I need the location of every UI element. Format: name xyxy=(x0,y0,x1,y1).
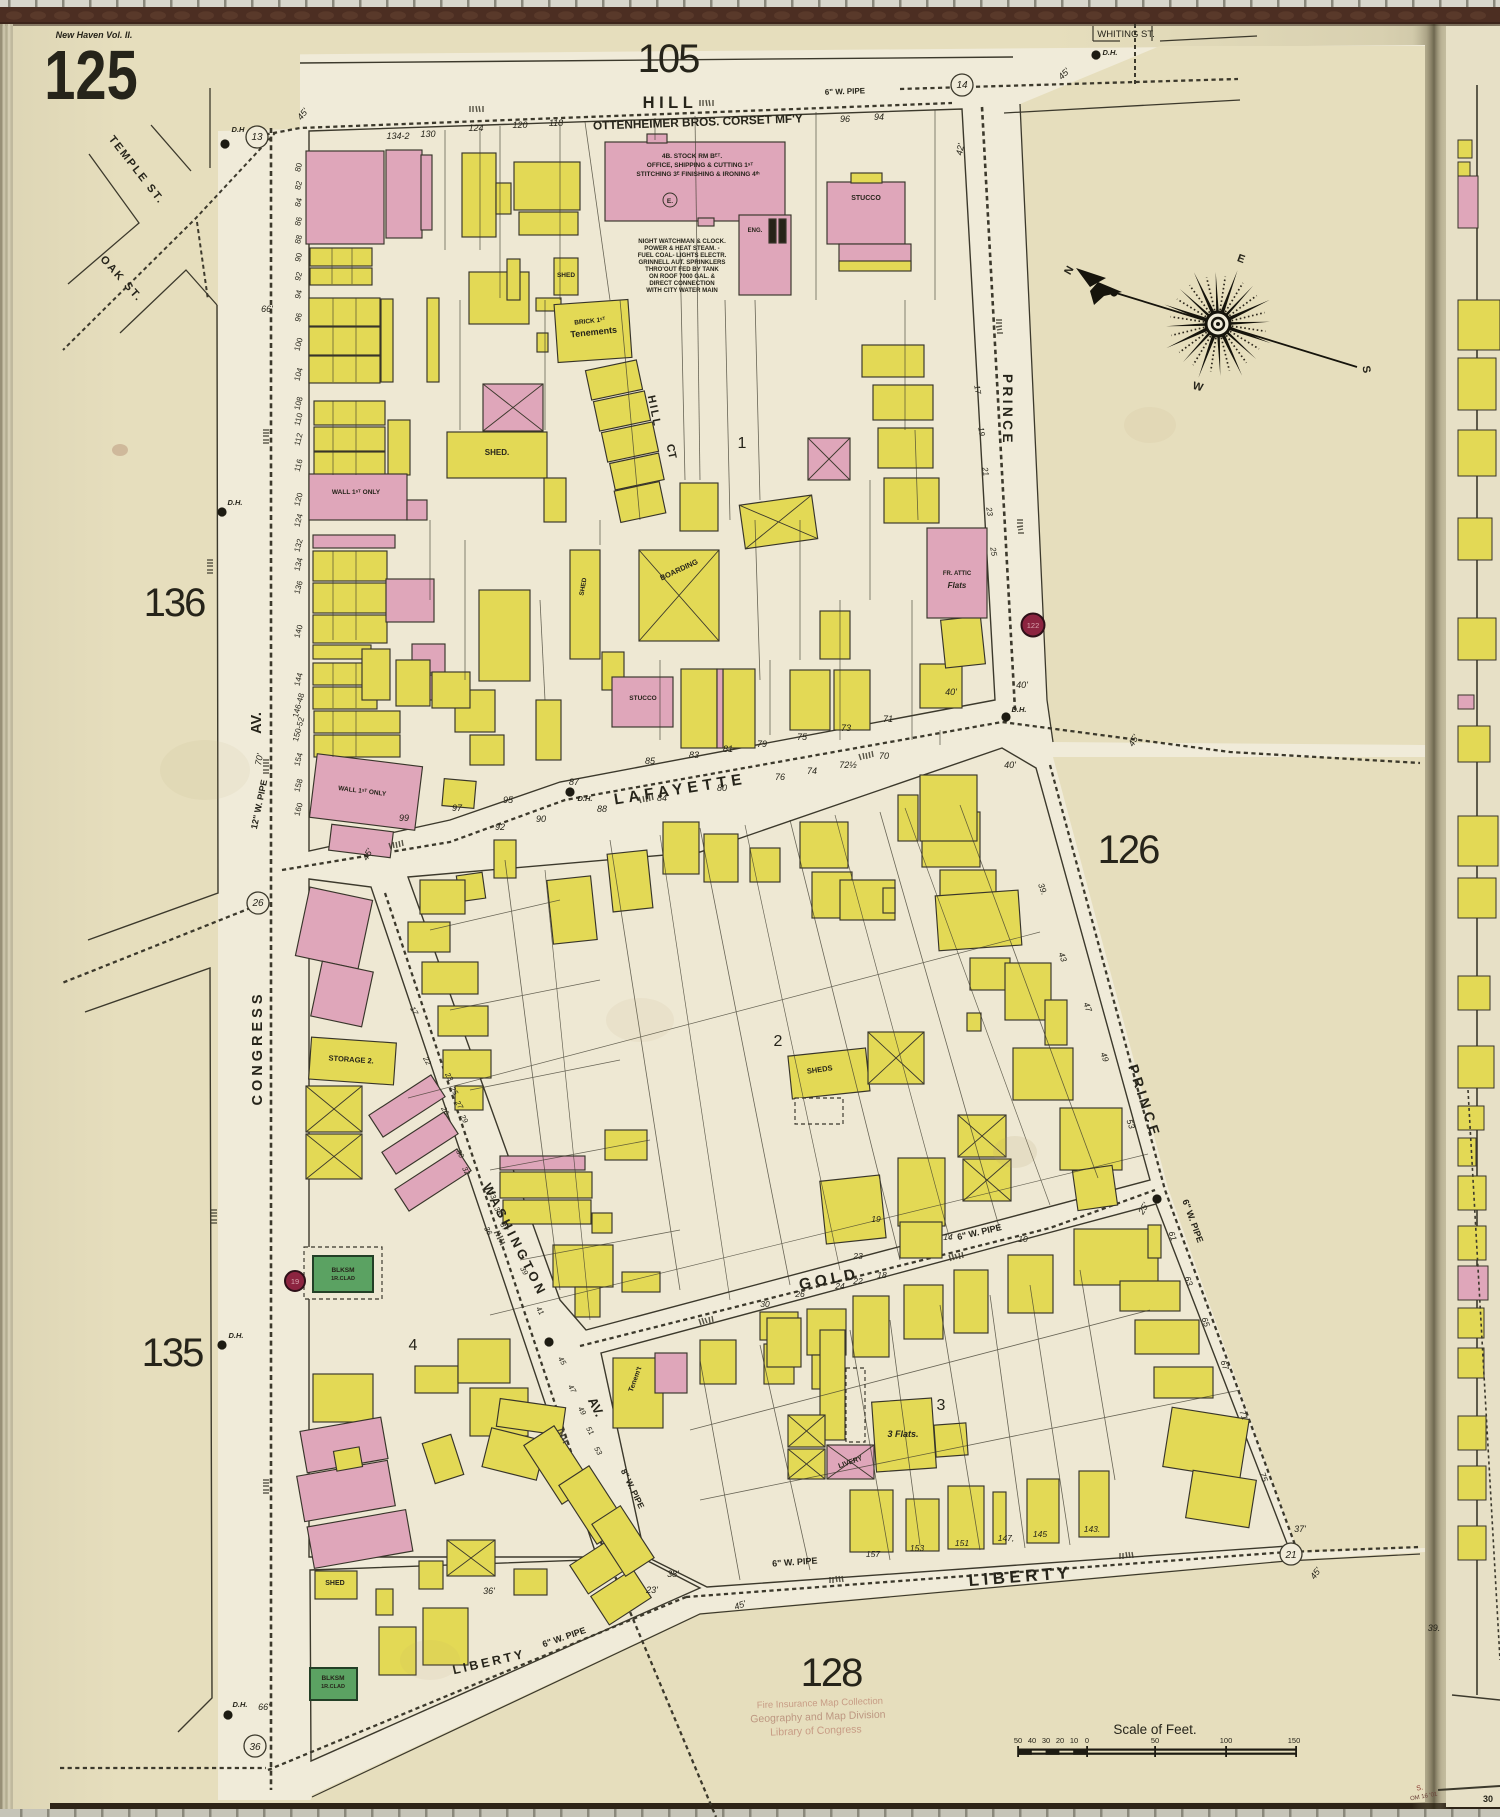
svg-text:HILL: HILL xyxy=(643,94,698,112)
svg-text:73: 73 xyxy=(841,723,851,733)
svg-text:4: 4 xyxy=(409,1337,418,1354)
svg-text:DIRECT CONNECTION: DIRECT CONNECTION xyxy=(649,280,714,287)
svg-text:94: 94 xyxy=(874,112,884,122)
svg-text:83: 83 xyxy=(689,750,699,760)
svg-text:WITH CITY WATER MAIN: WITH CITY WATER MAIN xyxy=(646,287,718,294)
svg-text:72½: 72½ xyxy=(839,760,857,770)
svg-text:100: 100 xyxy=(1220,1736,1233,1745)
svg-text:66': 66' xyxy=(261,304,273,314)
svg-text:GRINNELL AUT. SPRINKLERS: GRINNELL AUT. SPRINKLERS xyxy=(638,259,725,266)
svg-text:D.H.: D.H. xyxy=(228,498,243,507)
svg-text:21: 21 xyxy=(1284,1550,1296,1561)
svg-text:SHED: SHED xyxy=(325,1580,344,1587)
svg-text:88: 88 xyxy=(597,804,607,814)
svg-text:24: 24 xyxy=(834,1281,845,1291)
svg-text:1R.CLAD: 1R.CLAD xyxy=(321,1684,345,1690)
svg-text:36': 36' xyxy=(483,1586,495,1596)
svg-text:10: 10 xyxy=(1070,1736,1078,1745)
svg-text:18: 18 xyxy=(877,1270,887,1280)
svg-text:AV.: AV. xyxy=(249,712,265,734)
svg-text:S.: S. xyxy=(1416,1784,1424,1792)
svg-text:21: 21 xyxy=(980,465,991,476)
svg-text:BLKSM: BLKSM xyxy=(321,1675,344,1682)
svg-text:26: 26 xyxy=(794,1289,805,1299)
svg-text:40': 40' xyxy=(1004,760,1016,770)
svg-text:128: 128 xyxy=(801,1651,862,1695)
svg-text:STUCCO: STUCCO xyxy=(629,695,656,702)
svg-text:150: 150 xyxy=(1288,1736,1301,1745)
svg-text:D.H: D.H xyxy=(232,125,246,134)
svg-text:6" W. PIPE: 6" W. PIPE xyxy=(825,86,866,96)
svg-text:74: 74 xyxy=(807,766,817,776)
svg-text:2: 2 xyxy=(774,1033,783,1050)
svg-text:30: 30 xyxy=(760,1299,770,1309)
svg-text:1R.CLAD: 1R.CLAD xyxy=(331,1276,355,1282)
svg-text:90: 90 xyxy=(536,814,546,824)
svg-text:19: 19 xyxy=(871,1214,881,1224)
svg-text:D.H.: D.H. xyxy=(1012,705,1027,714)
svg-text:14: 14 xyxy=(943,1232,953,1242)
svg-text:STUCCO: STUCCO xyxy=(851,195,881,202)
svg-text:39.: 39. xyxy=(1428,1623,1441,1633)
svg-text:151: 151 xyxy=(955,1538,969,1548)
svg-text:ENG.: ENG. xyxy=(748,228,763,234)
svg-text:26: 26 xyxy=(251,898,264,909)
svg-text:97: 97 xyxy=(452,803,463,813)
svg-text:70': 70' xyxy=(253,753,265,767)
svg-text:157: 157 xyxy=(866,1549,880,1559)
svg-text:D.H.: D.H. xyxy=(229,1331,244,1340)
svg-text:23: 23 xyxy=(852,1251,863,1261)
svg-text:38': 38' xyxy=(667,1569,679,1579)
svg-text:14: 14 xyxy=(956,80,968,91)
svg-text:WALL 1ˢᵀ ONLY: WALL 1ˢᵀ ONLY xyxy=(332,489,381,496)
svg-text:125: 125 xyxy=(44,37,137,114)
svg-text:96: 96 xyxy=(840,114,850,124)
svg-text:126: 126 xyxy=(1098,828,1159,872)
svg-text:POWER & HEAT STEAM. -: POWER & HEAT STEAM. - xyxy=(644,245,719,252)
svg-text:84: 84 xyxy=(657,793,667,803)
svg-text:40': 40' xyxy=(945,687,957,697)
svg-text:BLKSM: BLKSM xyxy=(331,1267,354,1274)
svg-text:13: 13 xyxy=(251,132,263,143)
svg-text:118: 118 xyxy=(549,118,563,128)
svg-text:WHITING ST.: WHITING ST. xyxy=(1097,29,1155,40)
svg-text:22: 22 xyxy=(852,1276,863,1286)
svg-text:20: 20 xyxy=(1056,1736,1064,1745)
svg-text:19: 19 xyxy=(291,1277,299,1286)
svg-text:99: 99 xyxy=(399,813,409,823)
svg-text:80: 80 xyxy=(717,783,727,793)
svg-text:Scale of Feet.: Scale of Feet. xyxy=(1113,1722,1196,1737)
svg-text:134-2: 134-2 xyxy=(386,131,409,141)
svg-text:3: 3 xyxy=(937,1397,946,1414)
svg-text:ON ROOF 7000 GAL. &: ON ROOF 7000 GAL. & xyxy=(649,273,716,280)
svg-text:CONGRESS: CONGRESS xyxy=(250,991,266,1106)
svg-text:120: 120 xyxy=(512,120,527,130)
svg-text:SHED: SHED xyxy=(557,272,575,279)
svg-text:50: 50 xyxy=(1014,1736,1022,1745)
svg-text:0: 0 xyxy=(1085,1736,1089,1745)
svg-text:E.: E. xyxy=(667,198,673,205)
svg-text:D.H.: D.H. xyxy=(578,794,593,803)
svg-text:3 Flats.: 3 Flats. xyxy=(887,1429,918,1439)
svg-text:30: 30 xyxy=(1042,1736,1050,1745)
svg-text:81: 81 xyxy=(723,744,733,754)
svg-text:FR. ATTIC: FR. ATTIC xyxy=(943,571,972,577)
svg-text:130: 130 xyxy=(420,129,435,139)
svg-text:75: 75 xyxy=(797,732,808,742)
svg-text:NIGHT WATCHMAN & CLOCK.: NIGHT WATCHMAN & CLOCK. xyxy=(638,238,726,245)
svg-text:40: 40 xyxy=(1028,1736,1036,1745)
svg-text:42': 42' xyxy=(954,143,966,157)
svg-text:153: 153 xyxy=(910,1543,924,1553)
svg-text:STITCHING 3ᴱ FINISHING & IRON: STITCHING 3ᴱ FINISHING & IRONING 4ᵗʰ xyxy=(636,171,760,178)
svg-text:135: 135 xyxy=(142,1331,203,1375)
svg-text:145: 145 xyxy=(1033,1529,1047,1539)
svg-text:87: 87 xyxy=(569,777,580,787)
svg-text:79: 79 xyxy=(757,739,767,749)
svg-text:PRINCE: PRINCE xyxy=(1000,374,1015,446)
svg-text:FUEL COAL- LIGHTS ELECTR.: FUEL COAL- LIGHTS ELECTR. xyxy=(638,252,727,259)
svg-text:THRO'OUT FED BY TANK: THRO'OUT FED BY TANK xyxy=(645,266,719,273)
svg-text:23': 23' xyxy=(645,1585,658,1595)
svg-text:36: 36 xyxy=(249,1742,261,1753)
svg-text:D.H.: D.H. xyxy=(1103,48,1118,57)
svg-text:95: 95 xyxy=(503,795,514,805)
svg-text:66': 66' xyxy=(258,1702,270,1712)
svg-text:143.: 143. xyxy=(1084,1524,1101,1534)
svg-text:30: 30 xyxy=(1483,1794,1493,1804)
svg-text:122: 122 xyxy=(1027,621,1040,630)
svg-text:SHED.: SHED. xyxy=(485,448,509,457)
svg-text:70: 70 xyxy=(879,751,889,761)
svg-text:4B. STOCK RM Bᴱᵀ.: 4B. STOCK RM Bᴱᵀ. xyxy=(662,153,722,160)
svg-text:10: 10 xyxy=(1018,1234,1028,1244)
svg-text:71: 71 xyxy=(883,714,893,724)
svg-text:147,: 147, xyxy=(998,1533,1015,1543)
svg-text:1: 1 xyxy=(738,435,747,452)
svg-text:OFFICE, SHIPPING & CUTTING 1ˢᵀ: OFFICE, SHIPPING & CUTTING 1ˢᵀ xyxy=(647,162,754,169)
svg-text:92: 92 xyxy=(495,822,505,832)
svg-text:50: 50 xyxy=(1151,1736,1159,1745)
svg-text:New Haven Vol. II.: New Haven Vol. II. xyxy=(56,30,133,40)
svg-text:Flats: Flats xyxy=(948,581,967,590)
svg-text:85: 85 xyxy=(645,756,656,766)
svg-text:136: 136 xyxy=(144,581,205,625)
svg-text:105: 105 xyxy=(638,37,699,81)
svg-text:124: 124 xyxy=(468,123,483,133)
svg-text:D.H.: D.H. xyxy=(233,1700,248,1709)
svg-text:37': 37' xyxy=(1294,1524,1306,1534)
svg-text:76: 76 xyxy=(775,772,785,782)
svg-text:40': 40' xyxy=(1016,680,1028,690)
